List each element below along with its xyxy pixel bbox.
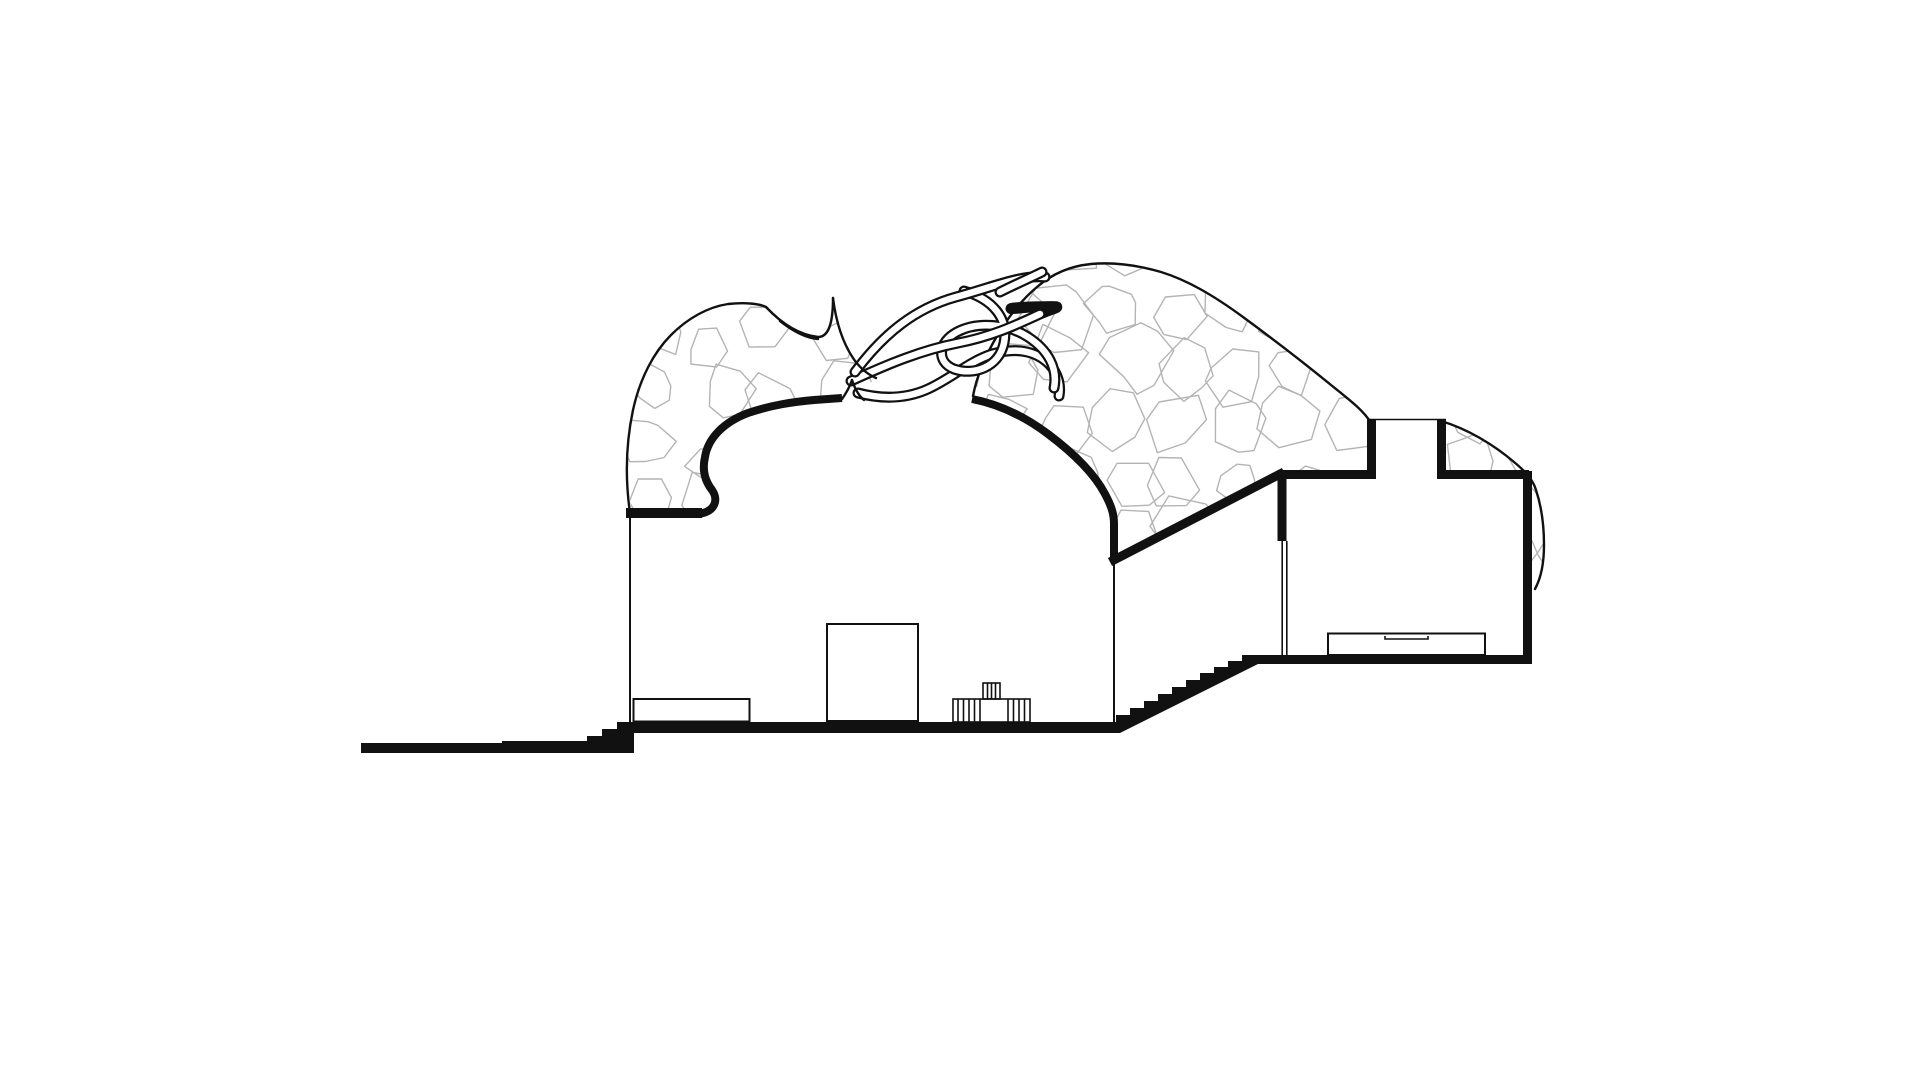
cut-walls [626, 398, 1529, 659]
stone-cell [1040, 217, 1096, 270]
stone-cell [1147, 458, 1199, 506]
stone-cell [984, 529, 1044, 580]
stone-cell [1331, 514, 1379, 565]
stone-cell [865, 478, 914, 539]
sideboard-body [1328, 634, 1485, 656]
stone-cell [631, 362, 671, 409]
stone-cell [583, 428, 625, 471]
stone-cell [579, 479, 632, 535]
stone-cell [806, 267, 851, 312]
stone-pattern-right-edge [1376, 369, 1560, 602]
stone-cell [1094, 212, 1156, 276]
stone-cell [1278, 233, 1327, 280]
stone-pattern-right-rock [905, 209, 1388, 580]
stone-cell [989, 462, 1049, 516]
stone-cell [691, 328, 728, 367]
stone-cell [813, 322, 855, 361]
stone-cell [1147, 395, 1207, 452]
stone-cell [559, 313, 615, 367]
stone-cell [1159, 338, 1213, 402]
stone-cell [643, 317, 681, 354]
stone-cell [1495, 369, 1547, 412]
drawing-canvas [0, 0, 1920, 1080]
stone-cell [869, 431, 906, 469]
stone-cell [1259, 303, 1310, 345]
stone-cell [1154, 295, 1207, 340]
sideboard-recess [1385, 636, 1428, 639]
stone-cell [729, 491, 797, 561]
stone-cell [1168, 222, 1223, 269]
door-opening [827, 624, 918, 721]
fluted-stool [953, 683, 1030, 722]
stone-cell [1445, 501, 1496, 545]
stone-cell [932, 508, 993, 563]
stone-cell [905, 396, 976, 461]
stone-cell [1376, 526, 1434, 594]
root-tubes [851, 272, 1060, 397]
stone-pattern-left-rock [555, 241, 921, 561]
stone-cell [1335, 296, 1389, 348]
stone-cell [555, 363, 627, 427]
stone-cell [753, 434, 788, 470]
stone-cell [1445, 375, 1506, 444]
stone-cell [1020, 507, 1093, 561]
stone-cell [1205, 349, 1258, 407]
rock-outlines [627, 263, 1544, 589]
stool-flutes [958, 699, 1025, 722]
stone-cell [1087, 389, 1145, 452]
claw-outer [766, 298, 833, 337]
plinth [634, 699, 750, 722]
stone-cell [749, 242, 811, 296]
stone-cell [1381, 386, 1424, 433]
stone-cell [1083, 286, 1135, 333]
stone-cell [1222, 505, 1269, 549]
dome-floor-slab [621, 722, 1120, 733]
section-drawing [0, 0, 1920, 1080]
stone-cell [626, 250, 684, 304]
stone-cell [677, 241, 742, 303]
side-room-door-leaf [1282, 541, 1287, 655]
stone-cell [1206, 233, 1260, 290]
stool-top-flutes [988, 683, 996, 699]
ground-line [361, 722, 634, 753]
stone-cell [865, 260, 903, 299]
stone-cell [1443, 533, 1491, 595]
cut-poche [361, 655, 1532, 753]
stone-cell [571, 257, 629, 307]
stone-cell [925, 217, 965, 258]
stone-cell [915, 450, 962, 505]
stone-cell [801, 437, 861, 487]
stone-cell [1205, 278, 1257, 332]
stone-cell [1335, 336, 1378, 385]
stone-cell [799, 480, 861, 537]
stone-cell [1387, 490, 1430, 533]
staircase [1112, 655, 1258, 733]
stone-cell [983, 209, 1044, 268]
stone-cell [740, 307, 791, 347]
dome-floor-edge-drop [621, 722, 634, 749]
stone-cell [1107, 463, 1165, 506]
sideboard [1328, 634, 1485, 656]
interior-details [630, 420, 1485, 723]
stone-cell [1332, 236, 1364, 272]
stone-cell [1257, 386, 1320, 448]
side-room-floor-slab [1246, 655, 1532, 664]
